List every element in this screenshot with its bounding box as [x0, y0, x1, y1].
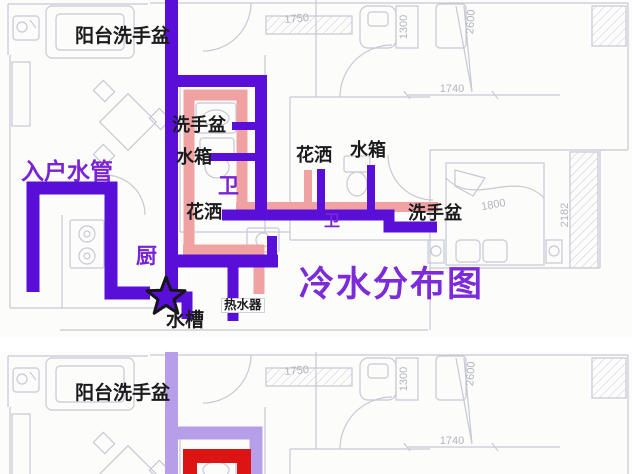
bath1-shower-label: 花洒 [186, 203, 222, 222]
bath2-shower-label: 花洒 [296, 146, 332, 165]
sink-label: 水槽 [166, 311, 204, 331]
cold-water-title: 冷水分布图 [299, 267, 484, 304]
section-divider [0, 337, 632, 352]
entry-pipe-label: 入户水管 [21, 159, 113, 183]
bath1-tank-label: 水箱 [176, 148, 212, 167]
water-heater-label: 热水器 [221, 298, 265, 313]
bath1-basin-label: 洗手盆 [172, 116, 226, 135]
hot-balcony-basin-label: 阳台洗手盆 [75, 384, 170, 404]
bath2-room-label: 卫 [324, 214, 340, 231]
water-distribution-diagram: 1750 1300 2600 1740 1800 2182 [0, 0, 632, 474]
balcony-basin-label: 阳台洗手盆 [75, 27, 170, 47]
bath2-tank-label: 水箱 [350, 141, 386, 160]
bath2-basin-label: 洗手盆 [408, 204, 462, 223]
kitchen-label: 厨 [136, 246, 157, 268]
bath1-room-label: 卫 [218, 176, 239, 198]
